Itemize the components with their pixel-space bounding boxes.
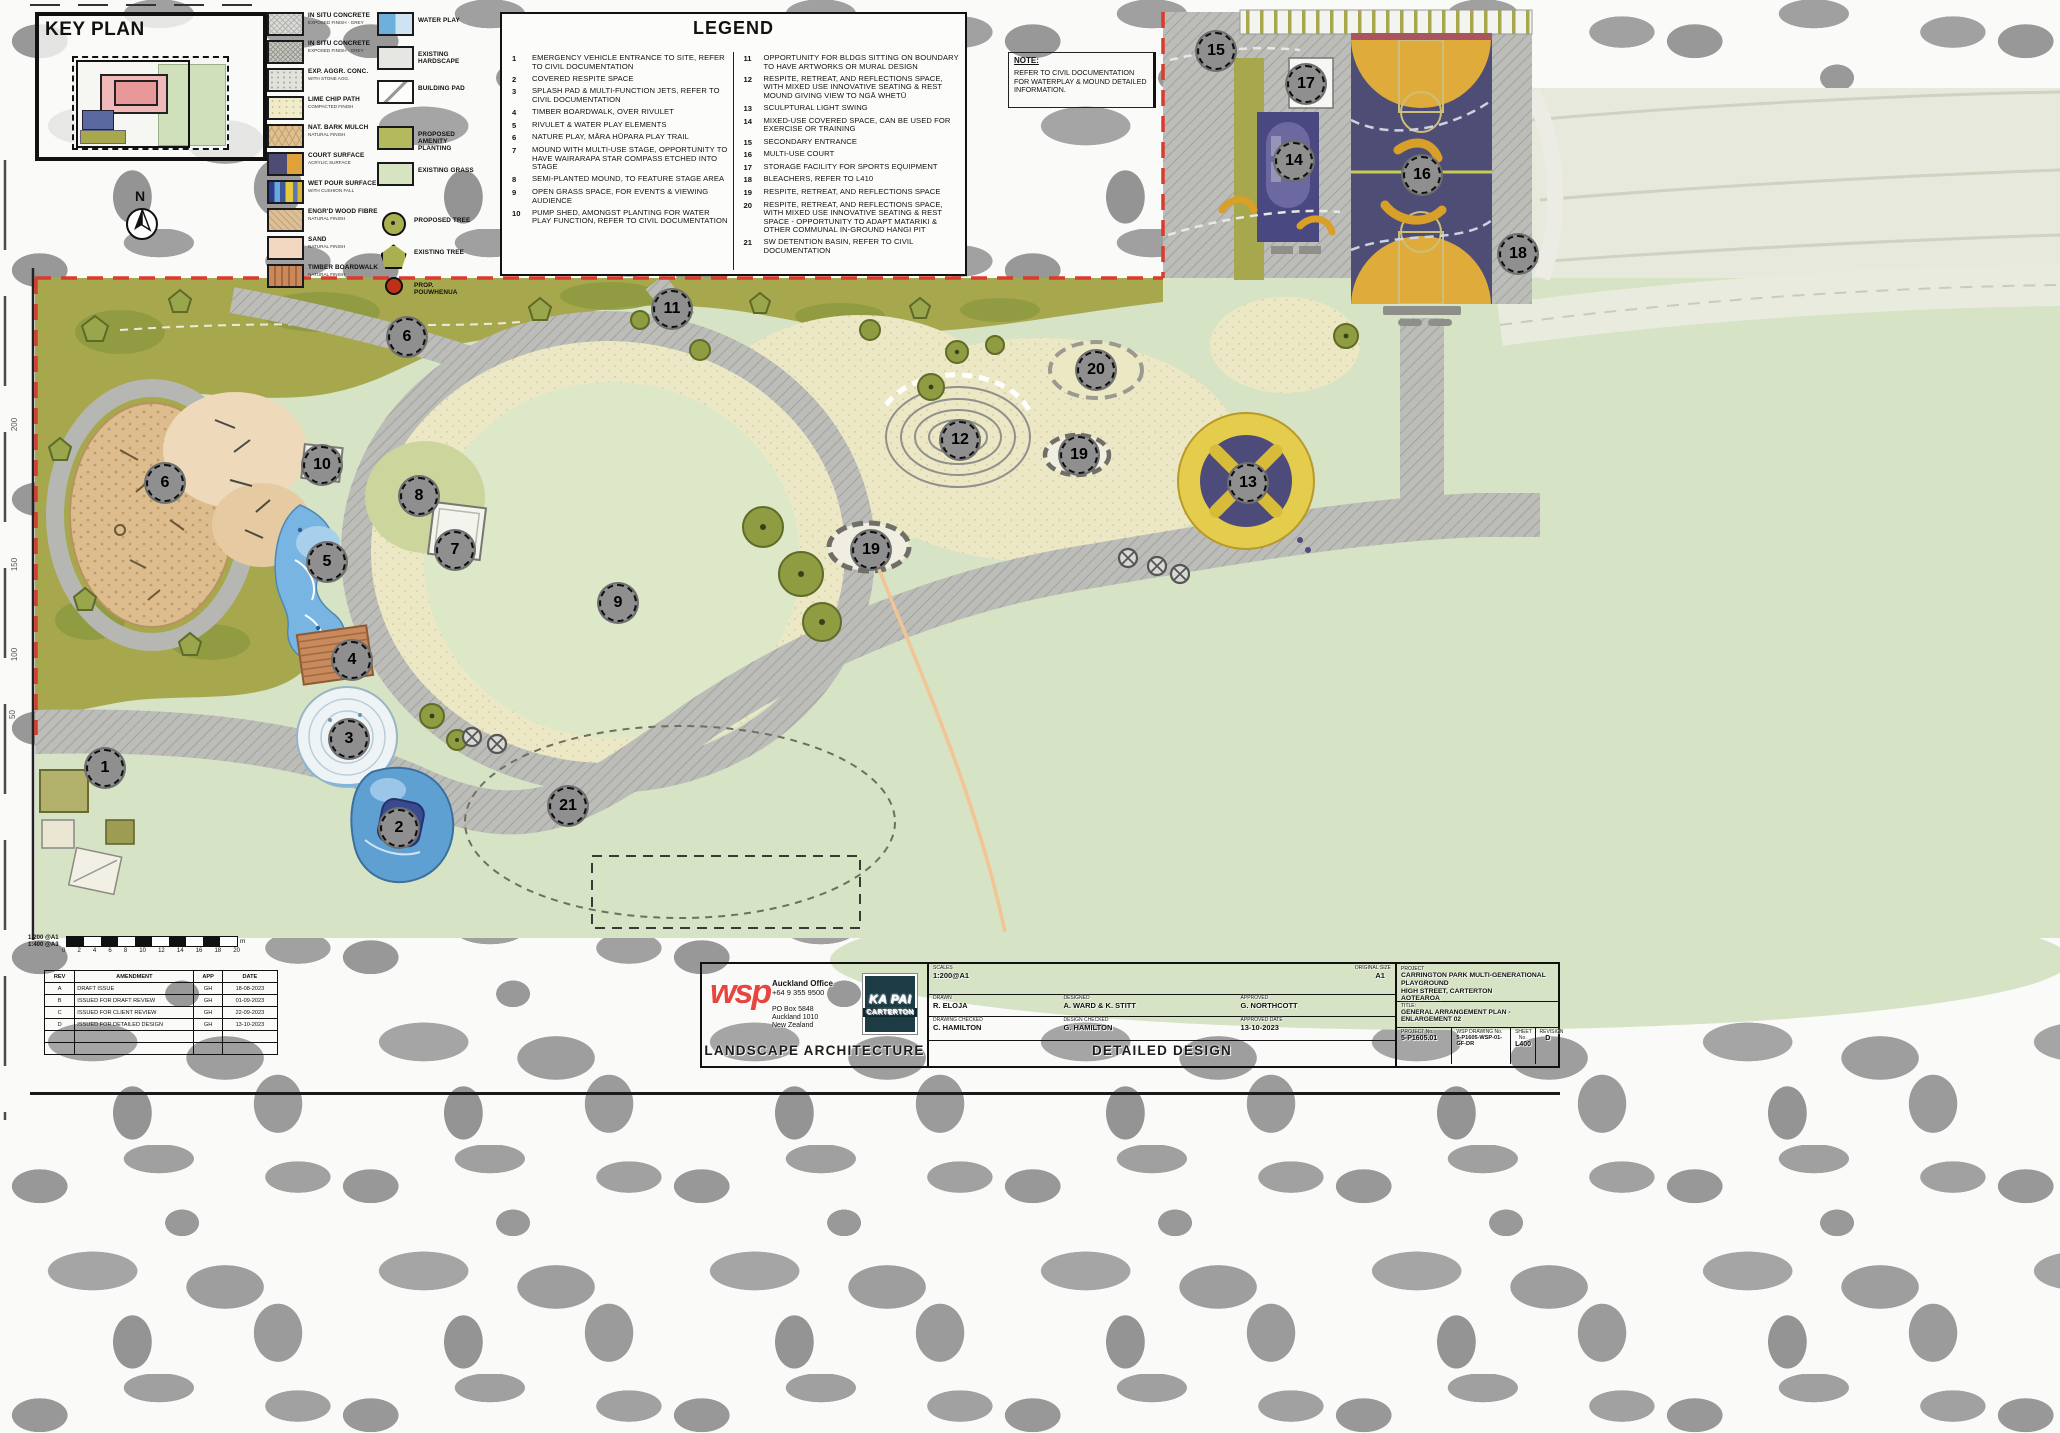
plan-marker-15: 15 (1197, 32, 1235, 70)
chainage-label: 100 (10, 648, 19, 661)
approved-date-cell: APPROVED DATE 13-10-2023 (1237, 1016, 1395, 1040)
revision-cell-empty (75, 1031, 194, 1043)
sheet-no-cell: SHEET No. L400 (1511, 1028, 1535, 1064)
legend-item: 15SECONDARY ENTRANCE (744, 138, 962, 147)
legend-title: LEGEND (502, 18, 965, 39)
plan-marker-5: 5 (308, 543, 346, 581)
legend-item: 4TIMBER BOARDWALK, OVER RIVULET (512, 108, 729, 117)
plan-marker-10: 10 (303, 446, 341, 484)
scale-labels: 1:200 @A1 1:400 @A3 (28, 935, 59, 949)
material-name: PROPOSED TREE (414, 213, 470, 225)
legend-item-text: SPLASH PAD & MULTI-FUNCTION JETS, REFER … (532, 87, 729, 104)
material-name: LIME CHIP PATH (308, 97, 360, 104)
legend-item-text: RESPITE, RETREAT, AND REFLECTIONS SPACE,… (764, 201, 962, 235)
revision-cell-value: A (45, 983, 75, 995)
plan-marker-7: 7 (436, 531, 474, 569)
legend-item: 20RESPITE, RETREAT, AND REFLECTIONS SPAC… (744, 201, 962, 235)
revision-cell-empty (45, 1043, 75, 1055)
lime-swatch (267, 96, 304, 120)
legend-item-text: PUMP SHED, AMONGST PLANTING FOR WATER PL… (532, 209, 729, 226)
scale-number: 8 (124, 948, 127, 954)
material-name: IN SITU CONCRETE (308, 13, 370, 20)
legend-item-number: 16 (744, 150, 764, 159)
bark-swatch (267, 124, 304, 148)
material-name: BUILDING PAD (418, 81, 465, 93)
material-name: PROPOSED AMENITY PLANTING (418, 127, 477, 152)
revision-row-empty (45, 1031, 278, 1043)
revision-cell-value: DRAFT ISSUE (75, 983, 194, 995)
dot-icon (385, 277, 403, 295)
water-swatch (377, 12, 414, 36)
legend-item: 6NATURE PLAY, MĀRA HŪPARA PLAY TRAIL (512, 133, 729, 142)
legend-item: 2COVERED RESPITE SPACE (512, 75, 729, 84)
plan-marker-13: 13 (1229, 464, 1267, 502)
discipline-title: LANDSCAPE ARCHITECTURE (702, 1043, 927, 1058)
revision-cell-empty (75, 1043, 194, 1055)
material-row: LIME CHIP PATHCOMPACTED FINISH (267, 96, 378, 120)
plan-marker-6: 6 (388, 318, 426, 356)
revision-cell: REVISION D (1536, 1028, 1560, 1064)
court-swatch (267, 152, 304, 176)
legend-items-1-10: 1EMERGENCY VEHICLE ENTRANCE TO SITE, REF… (502, 52, 734, 270)
note-box: NOTE: REFER TO CIVIL DOCUMENTATION FOR W… (1008, 52, 1156, 108)
revision-cell-value: GH (194, 1019, 222, 1031)
legend-item-number: 6 (512, 133, 532, 142)
legend-item: 5RIVULET & WATER PLAY ELEMENTS (512, 121, 729, 130)
material-label: TIMBER BOARDWALKNATURAL FINISH (308, 264, 378, 277)
legend-item: 10PUMP SHED, AMONGST PLANTING FOR WATER … (512, 209, 729, 226)
revision-cell-value: B (45, 995, 75, 1007)
material-row: BUILDING PAD (377, 80, 477, 104)
legend-item-text: SECONDARY ENTRANCE (764, 138, 858, 147)
material-subtext: COMPACTED FINISH (308, 104, 360, 109)
drawing-title: TITLE: GENERAL ARRANGEMENT PLAN - ENLARG… (1397, 1002, 1560, 1028)
key-plan-outline (76, 60, 190, 148)
original-size-cell: ORIGINAL SIZE A1 (1209, 964, 1395, 994)
key-plan-map (72, 56, 229, 150)
material-label: SANDNATURAL FINISH (308, 236, 345, 249)
plan-marker-20: 20 (1077, 351, 1115, 389)
material-subtext: EXPOSED FINISH - GREY (308, 48, 370, 53)
revision-table: REVAMENDMENTAPPDATE ADRAFT ISSUEGH18-08-… (44, 970, 278, 1055)
grass-swatch (377, 162, 414, 186)
material-label: ENGR'D WOOD FIBRENATURAL FINISH (308, 208, 378, 221)
material-name: SAND (308, 237, 345, 244)
title-block-consultant: wsp Auckland Office +64 9 355 9500 PO Bo… (702, 964, 927, 1066)
material-name: WATER PLAY (418, 13, 460, 25)
material-name: EXISTING TREE (414, 245, 464, 257)
material-row: NAT. BARK MULCHNATURAL FINISH (267, 124, 378, 148)
scale-number: 18 (214, 948, 221, 954)
material-name: PROP. POUWHENUA (414, 278, 477, 297)
legend-item-number: 7 (512, 146, 532, 172)
aggr-swatch (267, 68, 304, 92)
legend-item: 8SEMI-PLANTED MOUND, TO FEATURE STAGE AR… (512, 175, 729, 184)
revision-cell-value: ISSUED FOR DRAFT REVIEW (75, 995, 194, 1007)
material-label: WATER PLAY (418, 12, 460, 25)
material-label: LIME CHIP PATHCOMPACTED FINISH (308, 96, 360, 109)
material-subtext: EXPOSED FINISH - GREY (308, 20, 370, 25)
material-label: BUILDING PAD (418, 80, 465, 93)
scale-number: 4 (93, 948, 96, 954)
material-row: EXISTING GRASS (377, 162, 477, 186)
revision-row: CISSUED FOR CLIENT REVIEWGH22-09-2023 (45, 1007, 278, 1019)
plan-marker-19: 19 (852, 531, 890, 569)
drawn-cell: DRAWN R. ELOJA (929, 994, 1059, 1016)
legend-item-number: 20 (744, 201, 764, 235)
note-label: NOTE: (1014, 56, 1148, 65)
revision-header: APP (194, 971, 222, 983)
scale-number: 12 (158, 948, 165, 954)
revision-cell-empty (222, 1043, 277, 1055)
legend-item-text: MIXED-USE COVERED SPACE, CAN BE USED FOR… (764, 117, 962, 134)
revision-row: BISSUED FOR DRAFT REVIEWGH01-09-2023 (45, 995, 278, 1007)
office-address: PO Box 5848 Auckland 1010 New Zealand (772, 1006, 818, 1030)
revision-cell-value: 13-10-2023 (222, 1019, 277, 1031)
legend-item-number: 12 (744, 75, 764, 101)
legend-item-number: 3 (512, 87, 532, 104)
scale-number: 2 (77, 948, 80, 954)
scale-bar-ruler (66, 936, 238, 947)
material-row: SANDNATURAL FINISH (267, 236, 378, 260)
plan-marker-2: 2 (380, 809, 418, 847)
legend-item-number: 5 (512, 121, 532, 130)
drawing-sheet: 123456678910111213141516171819192021 KEY… (0, 0, 2060, 1433)
material-row: TIMBER BOARDWALKNATURAL FINISH (267, 264, 378, 288)
scale-bar: 1:200 @A1 1:400 @A3 02468101214161820 m (28, 933, 243, 963)
legend-item-number: 2 (512, 75, 532, 84)
material-row: EXISTING TREE (377, 244, 477, 269)
sheet-trim-line (30, 1092, 1560, 1095)
legend-item-number: 17 (744, 163, 764, 172)
material-name: EXISTING GRASS (418, 163, 474, 175)
approved-cell: APPROVED G. NORTHCOTT (1237, 994, 1395, 1016)
materials-column-right: WATER PLAYEXISTING HARDSCAPEBUILDING PAD… (377, 12, 477, 305)
material-label: EXISTING HARDSCAPE (418, 46, 477, 66)
wetpour-swatch (267, 180, 304, 204)
material-label: PROP. POUWHENUA (414, 277, 477, 297)
key-plan-title: KEY PLAN (45, 19, 263, 41)
material-label: IN SITU CONCRETEEXPOSED FINISH - GREY (308, 40, 370, 53)
legend-item: 13SCULPTURAL LIGHT SWING (744, 104, 962, 113)
scale-number: 20 (233, 948, 240, 954)
material-label: PROPOSED AMENITY PLANTING (418, 126, 477, 152)
scale-number: 6 (108, 948, 111, 954)
designed-cell: DESIGNED A. WARD & K. STITT (1059, 994, 1236, 1016)
design-checked-cell: DESIGN CHECKED G. HAMILTON (1059, 1016, 1236, 1040)
legend-item: 3SPLASH PAD & MULTI-FUNCTION JETS, REFER… (512, 87, 729, 104)
drawing-no-cell: WSP DRAWING No. 5-P1605-WSP-01-GF-DR (1452, 1028, 1511, 1064)
plan-marker-19: 19 (1060, 436, 1098, 474)
tree-icon (382, 212, 406, 236)
plan-marker-9: 9 (599, 584, 637, 622)
legend-item: 16MULTI-USE COURT (744, 150, 962, 159)
material-label: EXISTING TREE (414, 244, 464, 257)
plan-marker-17: 17 (1287, 65, 1325, 103)
material-subtext: ACRYLIC SURFACE (308, 160, 364, 165)
revision-cell-value: 22-09-2023 (222, 1007, 277, 1019)
material-row: IN SITU CONCRETEEXPOSED FINISH - GREY (267, 12, 378, 36)
material-label: EXP. AGGR. CONC.WITH STONE AGG. (308, 68, 368, 81)
material-name: TIMBER BOARDWALK (308, 265, 378, 272)
material-name: COURT SURFACE (308, 153, 364, 160)
legend-item-text: RESPITE, RETREAT, AND REFLECTIONS SPACE (764, 188, 941, 197)
office-info: Auckland Office +64 9 355 9500 (772, 980, 833, 997)
scales-cell: SCALES 1:200@A1 (929, 964, 1209, 994)
plan-marker-8: 8 (400, 477, 438, 515)
pad-swatch (377, 80, 414, 104)
legend-item-number: 19 (744, 188, 764, 197)
revision-cell-value: GH (194, 983, 222, 995)
client-logo: KA PAI CARTERTON (863, 974, 917, 1034)
revision-row: DISSUED FOR DETAILED DESIGNGH13-10-2023 (45, 1019, 278, 1031)
plan-marker-1: 1 (86, 749, 124, 787)
title-block-project: PROJECT CARRINGTON PARK MULTI-GENERATION… (1397, 964, 1560, 1066)
plan-marker-3: 3 (330, 720, 368, 758)
legend-item: 7MOUND WITH MULTI-USE STAGE, OPPORTUNITY… (512, 146, 729, 172)
legend-item-text: SEMI-PLANTED MOUND, TO FEATURE STAGE ARE… (532, 175, 724, 184)
legend-item-number: 10 (512, 209, 532, 226)
revision-cell-empty (222, 1031, 277, 1043)
title-block-approvals: SCALES 1:200@A1 ORIGINAL SIZE A1 DRAWN R… (927, 964, 1397, 1066)
material-label: WET POUR SURFACEWITH CUSHION FALL (308, 180, 376, 193)
plan-marker-6: 6 (146, 464, 184, 502)
north-letter: N (135, 188, 166, 204)
legend-item: 1EMERGENCY VEHICLE ENTRANCE TO SITE, REF… (512, 54, 729, 71)
legend-item-text: OPPORTUNITY FOR BLDGS SITTING ON BOUNDAR… (764, 54, 962, 71)
legend-item-number: 13 (744, 104, 764, 113)
plan-marker-12: 12 (941, 421, 979, 459)
scale-numbers: 02468101214161820 (62, 948, 240, 954)
revision-cell-value: 18-08-2023 (222, 983, 277, 995)
scale-unit: m (240, 938, 245, 945)
material-subtext: NATURAL FINISH (308, 132, 368, 137)
material-row: WATER PLAY (377, 12, 477, 36)
legend: LEGEND 1EMERGENCY VEHICLE ENTRANCE TO SI… (500, 12, 967, 276)
legend-item-text: SCULPTURAL LIGHT SWING (764, 104, 868, 113)
legend-item-text: TIMBER BOARDWALK, OVER RIVULET (532, 108, 674, 117)
drawing-checked-cell: DRAWING CHECKED C. HAMILTON (929, 1016, 1059, 1040)
legend-item-number: 18 (744, 175, 764, 184)
material-subtext: NATURAL FINISH (308, 244, 345, 249)
material-label: IN SITU CONCRETEEXPOSED FINISH - GREY (308, 12, 370, 25)
legend-item-text: RESPITE, RETREAT, AND REFLECTIONS SPACE,… (764, 75, 962, 101)
revision-cell-value: D (45, 1019, 75, 1031)
legend-item-number: 21 (744, 238, 764, 255)
materials-legend: IN SITU CONCRETEEXPOSED FINISH - GREYIN … (265, 10, 477, 272)
legend-item-text: COVERED RESPITE SPACE (532, 75, 634, 84)
tree-symbol (377, 212, 410, 236)
material-label: EXISTING GRASS (418, 162, 474, 175)
legend-item-text: RIVULET & WATER PLAY ELEMENTS (532, 121, 667, 130)
revision-row: ADRAFT ISSUEGH18-08-2023 (45, 983, 278, 995)
legend-item: 18BLEACHERS, REFER TO L410 (744, 175, 962, 184)
material-subtext: NATURAL FINISH (308, 272, 378, 277)
chainage-label: 50 (8, 710, 17, 719)
legend-item-number: 9 (512, 188, 532, 205)
legend-item-text: MOUND WITH MULTI-USE STAGE, OPPORTUNITY … (532, 146, 729, 172)
legend-item-text: STORAGE FACILITY FOR SPORTS EQUIPMENT (764, 163, 938, 172)
legend-item-number: 15 (744, 138, 764, 147)
material-row: PROPOSED AMENITY PLANTING (377, 126, 477, 152)
stage-title: DETAILED DESIGN (929, 1043, 1395, 1058)
legend-item: 12RESPITE, RETREAT, AND REFLECTIONS SPAC… (744, 75, 962, 101)
legend-item: 9OPEN GRASS SPACE, FOR EVENTS & VIEWING … (512, 188, 729, 205)
material-row: EXISTING HARDSCAPE (377, 46, 477, 70)
revision-header: REV (45, 971, 75, 983)
scale-number: 0 (62, 948, 65, 954)
material-name: NAT. BARK MULCH (308, 125, 368, 132)
legend-item-text: OPEN GRASS SPACE, FOR EVENTS & VIEWING A… (532, 188, 729, 205)
north-arrow: N (122, 188, 166, 244)
legend-item: 14MIXED-USE COVERED SPACE, CAN BE USED F… (744, 117, 962, 134)
project-no-cell: PROJECT No. 5-P1605.01 (1397, 1028, 1452, 1064)
key-plan: KEY PLAN (35, 12, 267, 161)
pent-icon (381, 244, 407, 269)
plan-marker-16: 16 (1403, 156, 1441, 194)
revision-cell-value: C (45, 1007, 75, 1019)
revision-cell-value: GH (194, 995, 222, 1007)
revision-cell-empty (194, 1031, 222, 1043)
note-text: REFER TO CIVIL DOCUMENTATION FOR WATERPL… (1014, 69, 1148, 95)
material-subtext: WITH STONE AGG. (308, 76, 368, 81)
chainage-label: 150 (10, 558, 19, 571)
revision-header: DATE (222, 971, 277, 983)
wsp-logo: wsp (710, 978, 770, 1006)
north-arrow-icon (122, 204, 166, 244)
revision-cell-empty (45, 1031, 75, 1043)
legend-items-11-21: 11OPPORTUNITY FOR BLDGS SITTING ON BOUND… (734, 52, 966, 270)
material-row: EXP. AGGR. CONC.WITH STONE AGG. (267, 68, 378, 92)
legend-item: 11OPPORTUNITY FOR BLDGS SITTING ON BOUND… (744, 54, 962, 71)
hardscape-swatch (377, 46, 414, 70)
revision-header: AMENDMENT (75, 971, 194, 983)
planting-swatch (377, 126, 414, 150)
pent-symbol (377, 244, 410, 269)
project-name: PROJECT CARRINGTON PARK MULTI-GENERATION… (1397, 964, 1560, 1002)
material-name: ENGR'D WOOD FIBRE (308, 209, 378, 216)
legend-item-number: 11 (744, 54, 764, 71)
material-name: EXP. AGGR. CONC. (308, 69, 368, 76)
revision-cell-value: ISSUED FOR DETAILED DESIGN (75, 1019, 194, 1031)
material-name: IN SITU CONCRETE (308, 41, 370, 48)
material-row: COURT SURFACEACRYLIC SURFACE (267, 152, 378, 176)
scale-number: 16 (196, 948, 203, 954)
material-label: PROPOSED TREE (414, 212, 470, 225)
legend-item-number: 8 (512, 175, 532, 184)
legend-item: 19RESPITE, RETREAT, AND REFLECTIONS SPAC… (744, 188, 962, 197)
material-row: IN SITU CONCRETEEXPOSED FINISH - GREY (267, 40, 378, 64)
plan-marker-21: 21 (549, 787, 587, 825)
legend-item-text: SW DETENTION BASIN, REFER TO CIVIL DOCUM… (764, 238, 962, 255)
material-row: ENGR'D WOOD FIBRENATURAL FINISH (267, 208, 378, 232)
material-label: COURT SURFACEACRYLIC SURFACE (308, 152, 364, 165)
legend-item-number: 1 (512, 54, 532, 71)
concrete1-swatch (267, 12, 304, 36)
legend-item: 17STORAGE FACILITY FOR SPORTS EQUIPMENT (744, 163, 962, 172)
legend-item-text: MULTI-USE COURT (764, 150, 835, 159)
material-subtext: WITH CUSHION FALL (308, 188, 376, 193)
concrete2-swatch (267, 40, 304, 64)
legend-item: 21SW DETENTION BASIN, REFER TO CIVIL DOC… (744, 238, 962, 255)
legend-item-number: 14 (744, 117, 764, 134)
legend-item-text: NATURE PLAY, MĀRA HŪPARA PLAY TRAIL (532, 133, 689, 142)
plan-marker-18: 18 (1499, 235, 1537, 273)
dot-symbol (377, 277, 410, 295)
revision-cell-value: GH (194, 1007, 222, 1019)
title-block: wsp Auckland Office +64 9 355 9500 PO Bo… (700, 962, 1560, 1068)
revision-cell-value: ISSUED FOR CLIENT REVIEW (75, 1007, 194, 1019)
plan-marker-11: 11 (653, 290, 691, 328)
engwood-swatch (267, 208, 304, 232)
timber-swatch (267, 264, 304, 288)
scale-number: 14 (177, 948, 184, 954)
legend-item-text: EMERGENCY VEHICLE ENTRANCE TO SITE, REFE… (532, 54, 729, 71)
material-row: PROP. POUWHENUA (377, 277, 477, 297)
revision-row-empty (45, 1043, 278, 1055)
material-name: EXISTING HARDSCAPE (418, 47, 477, 66)
material-row: PROPOSED TREE (377, 212, 477, 236)
sheet-frame-fragment (30, 4, 262, 6)
scale-number: 10 (139, 948, 146, 954)
plan-marker-4: 4 (333, 641, 371, 679)
material-label: NAT. BARK MULCHNATURAL FINISH (308, 124, 368, 137)
revision-cell-value: 01-09-2023 (222, 995, 277, 1007)
chainage-label: 200 (10, 418, 19, 431)
materials-column-left: IN SITU CONCRETEEXPOSED FINISH - GREYIN … (267, 12, 378, 292)
material-subtext: NATURAL FINISH (308, 216, 378, 221)
material-row: WET POUR SURFACEWITH CUSHION FALL (267, 180, 378, 204)
revision-cell-empty (194, 1043, 222, 1055)
plan-marker-14: 14 (1275, 142, 1313, 180)
sand-swatch (267, 236, 304, 260)
material-name: WET POUR SURFACE (308, 181, 376, 188)
legend-item-number: 4 (512, 108, 532, 117)
legend-item-text: BLEACHERS, REFER TO L410 (764, 175, 874, 184)
